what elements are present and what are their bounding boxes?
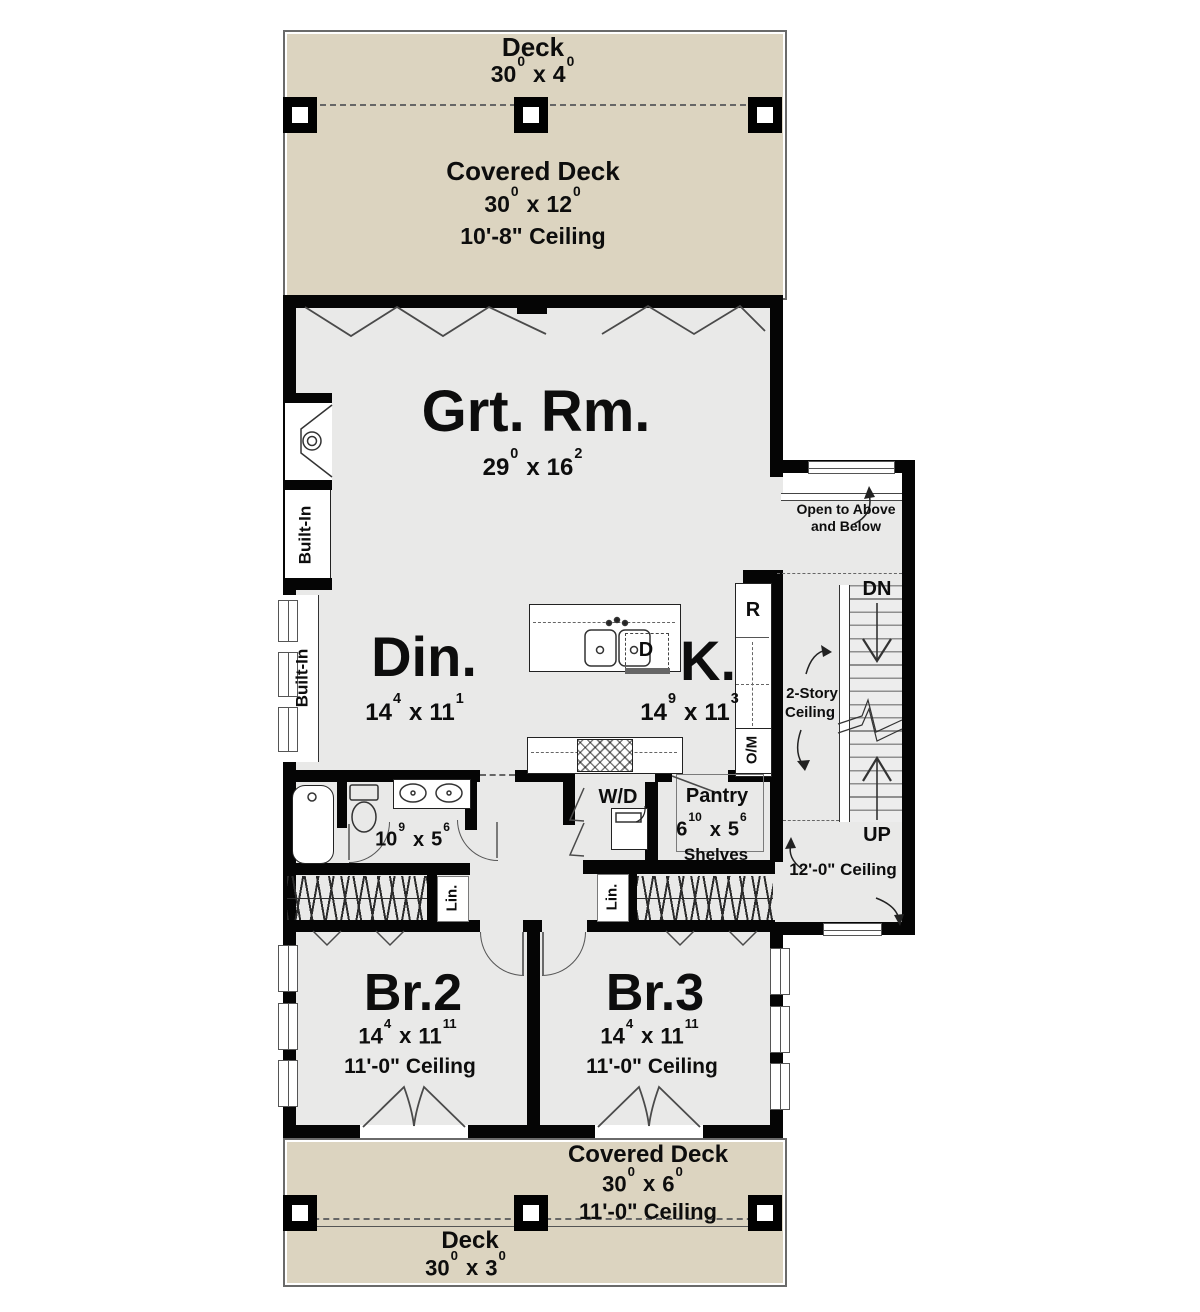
dim-sep: x	[641, 1024, 653, 1047]
dim-sup-a: 4	[393, 691, 401, 707]
wall-segment	[902, 460, 915, 935]
dim-sup-b: 11	[443, 1016, 457, 1031]
dim-sup-a: 4	[384, 1016, 391, 1031]
dim-sup-b: 0	[498, 1248, 505, 1263]
dim-sup-b: 6	[740, 810, 747, 824]
fireplace-niche	[285, 393, 332, 490]
dim-sup-a: 0	[517, 54, 525, 69]
wall-segment	[337, 782, 347, 828]
dishwasher-label: D	[639, 640, 653, 661]
vanity	[393, 779, 471, 809]
wall-segment	[703, 1125, 783, 1138]
great-room-label: Grt. Rm.	[422, 382, 651, 443]
pantry-dimensions: 610x56	[676, 818, 747, 841]
dim-a: 30	[602, 1171, 626, 1196]
washer-dryer-unit	[611, 808, 648, 850]
dim-sup-b: 0	[675, 1164, 682, 1179]
bedroom3-label: Br.3	[606, 966, 704, 1021]
fireplace-cap	[285, 393, 332, 403]
window	[808, 461, 895, 474]
dim-a: 29	[483, 454, 510, 481]
window	[823, 923, 882, 936]
dim-a: 6	[676, 819, 687, 841]
dim-sep: x	[533, 62, 546, 86]
washer-dryer-label: W/D	[599, 787, 638, 808]
bathtub	[292, 785, 334, 864]
bedroom2-label: Br.2	[364, 966, 462, 1021]
deck-label: Deck	[502, 34, 564, 61]
ceiling-break-dash	[783, 820, 839, 821]
dim-b: 5	[431, 829, 442, 851]
dim-sup-a: 9	[398, 820, 405, 834]
fireplace-cap	[285, 480, 332, 490]
fridge-divider	[736, 637, 769, 638]
ceiling-break-dash	[777, 573, 902, 574]
dim-a: 14	[358, 1023, 382, 1048]
dim-a: 14	[600, 1023, 624, 1048]
deck-post	[283, 1195, 317, 1231]
bath-dimensions: 109x56	[375, 828, 451, 851]
open-shaft	[783, 473, 902, 495]
shaft-railing	[781, 493, 902, 501]
deck-post	[748, 97, 782, 133]
dim-a: 30	[425, 1255, 449, 1280]
dim-a: 14	[365, 699, 392, 726]
built-in-lower-label: Built-In	[294, 649, 311, 708]
covered-deck-dimensions: 300x120	[484, 192, 581, 216]
dim-b: 6	[662, 1171, 674, 1196]
dim-a: 14	[640, 699, 667, 726]
bedroom2-dimensions: 144x1111	[358, 1024, 457, 1047]
deck-dimensions: 300x40	[491, 62, 576, 86]
dim-sup-a: 9	[668, 691, 676, 707]
dim-sup-a: 0	[511, 184, 519, 199]
dishwasher-front	[625, 668, 670, 674]
covered-deck-ceiling: 10'-8" Ceiling	[460, 224, 605, 248]
dim-a: 30	[491, 61, 517, 87]
dining-label: Din.	[371, 628, 477, 687]
window	[770, 1006, 790, 1053]
dim-sep: x	[466, 1256, 478, 1279]
counter-dash	[736, 684, 769, 685]
dim-sep: x	[684, 700, 697, 725]
wall-segment	[283, 863, 470, 875]
two-story-label2: Ceiling	[785, 705, 835, 721]
window	[278, 1060, 298, 1107]
dim-b: 11	[418, 1023, 441, 1048]
dim-a: 30	[484, 191, 510, 217]
dim-sep: x	[643, 1172, 655, 1195]
wall-segment	[283, 578, 332, 590]
bedroom3-ceiling: 11'-0" Ceiling	[586, 1056, 718, 1078]
deck-post	[514, 97, 548, 133]
dim-sup-a: 0	[628, 1164, 635, 1179]
pantry-label: Pantry	[686, 786, 748, 807]
dim-sup-b: 11	[685, 1016, 699, 1031]
bottom-deck-dimensions: 300x30	[425, 1256, 507, 1279]
dim-sep: x	[399, 1024, 411, 1047]
dim-b: 4	[553, 61, 566, 87]
bottom-covered-deck-label: Covered Deck	[568, 1142, 728, 1167]
dim-sup-a: 0	[451, 1248, 458, 1263]
open-to-above-label: Open to Above	[796, 502, 895, 517]
wall-segment	[468, 1125, 595, 1138]
dim-b: 11	[660, 1023, 683, 1048]
great-room-dimensions: 290x162	[483, 455, 584, 480]
closet-rod-left	[287, 876, 427, 920]
range-cooktop	[577, 739, 633, 772]
dim-b: 11	[429, 699, 454, 726]
kitchen-label: K.	[680, 632, 736, 691]
window	[278, 945, 298, 992]
dim-sep: x	[527, 192, 540, 216]
staircase	[848, 585, 902, 822]
wall-segment	[563, 770, 575, 825]
stair-down-label: DN	[863, 579, 892, 600]
closet-rod-right	[637, 876, 773, 920]
wall-segment	[517, 295, 547, 314]
deck-post	[514, 1195, 548, 1231]
pantry-shelves-label: Shelves	[684, 846, 748, 864]
dining-dimensions: 144x111	[365, 700, 464, 725]
dim-sup-b: 6	[443, 820, 450, 834]
dim-sup-b: 0	[567, 54, 575, 69]
wing-ceiling-label: 12'-0" Ceiling	[789, 861, 897, 879]
two-story-label: 2-Story	[786, 686, 838, 702]
covered-deck-label: Covered Deck	[446, 158, 619, 185]
built-in-upper-label: Built-In	[297, 506, 314, 565]
floor-passage-upper	[770, 477, 783, 573]
wall-segment	[283, 1125, 360, 1138]
bedroom3-dimensions: 144x1111	[600, 1024, 699, 1047]
window	[278, 1003, 298, 1050]
wall-segment	[427, 874, 437, 922]
deck-post	[748, 1195, 782, 1231]
dim-sup-a: 10	[688, 810, 701, 824]
dim-sep: x	[413, 830, 424, 851]
wall-segment	[743, 570, 783, 583]
dim-sep: x	[409, 700, 422, 725]
window	[278, 600, 298, 642]
dim-sup-a: 4	[626, 1016, 633, 1031]
linen-right-label: Lin.	[605, 884, 620, 911]
linen-left-label: Lin.	[445, 885, 460, 912]
wall-segment	[527, 920, 540, 1138]
dim-b: 16	[547, 454, 574, 481]
window	[278, 707, 298, 752]
dim-b: 3	[485, 1255, 497, 1280]
bottom-covered-deck-dimensions: 300x60	[602, 1172, 684, 1195]
oven-microwave-label: O/M	[745, 736, 760, 764]
island-overhang	[533, 622, 675, 623]
deck-post	[283, 97, 317, 133]
wall-segment	[770, 295, 783, 477]
bedroom2-ceiling: 11'-0" Ceiling	[344, 1056, 476, 1078]
dim-a: 10	[375, 829, 397, 851]
kitchen-dimensions: 149x113	[640, 700, 739, 725]
dim-sup-b: 3	[731, 691, 739, 707]
dim-b: 12	[546, 191, 572, 217]
bottom-covered-deck-ceiling: 11'-0" Ceiling	[579, 1200, 717, 1223]
dim-sep: x	[710, 820, 721, 841]
dim-sup-b: 1	[456, 691, 464, 707]
dim-sup-a: 0	[510, 446, 518, 462]
dim-sup-b: 0	[573, 184, 581, 199]
fridge-label: R	[746, 600, 760, 621]
stair-up-label: UP	[863, 825, 891, 846]
window	[770, 1063, 790, 1110]
window	[770, 948, 790, 995]
cased-opening	[480, 774, 515, 776]
dim-b: 11	[704, 699, 729, 726]
dim-sup-b: 2	[574, 446, 582, 462]
floor-plan: Deck 300x40 Covered Deck 300x120 10'-8" …	[0, 0, 1200, 1312]
stair-rail	[839, 585, 850, 822]
open-to-above-label2: and Below	[811, 519, 881, 534]
dim-sep: x	[526, 455, 539, 480]
dim-b: 5	[728, 819, 739, 841]
